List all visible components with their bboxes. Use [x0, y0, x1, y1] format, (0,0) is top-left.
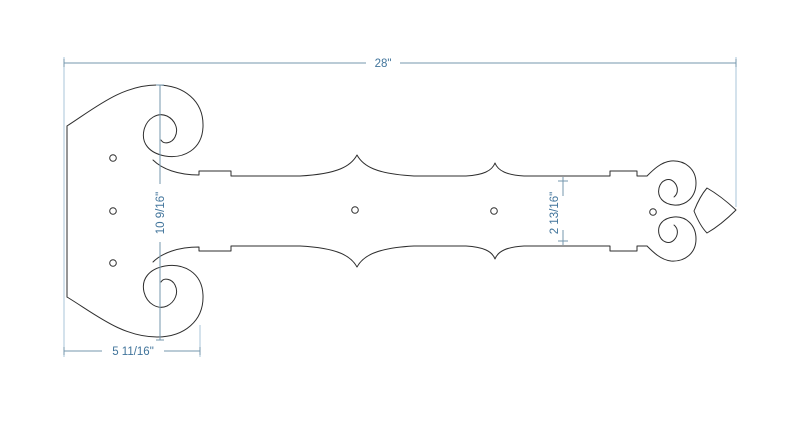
hinge-technical-drawing: 28" 10 9/16" 2 13/16" 5 11/16" [0, 0, 803, 432]
right-end-bottom-scroll [647, 217, 696, 261]
dimension-plate-height-label: 10 9/16" [155, 192, 167, 234]
screw-hole [110, 155, 117, 162]
right-end-spear-point [694, 188, 736, 233]
strap-bottom-edge [153, 246, 647, 267]
dimension-plate-width: 5 11/16" [64, 346, 200, 358]
hinge-outline [67, 85, 736, 337]
screw-hole [110, 260, 117, 267]
dimension-strap-width-label: 2 13/16" [549, 192, 561, 234]
screw-hole [650, 209, 657, 216]
dimension-plate-height: 10 9/16" [155, 85, 167, 340]
left-plate-bottom-scroll [67, 265, 203, 337]
drawing-canvas: 28" 10 9/16" 2 13/16" 5 11/16" [0, 0, 803, 432]
left-plate-top-scroll [67, 85, 203, 157]
dimension-overall-length-label: 28" [375, 58, 392, 70]
screw-hole [110, 208, 117, 215]
dimension-annotations: 28" 10 9/16" 2 13/16" 5 11/16" [64, 57, 736, 358]
dimension-plate-width-label: 5 11/16" [112, 346, 154, 358]
screw-hole [352, 207, 359, 214]
dimension-strap-width: 2 13/16" [549, 177, 568, 245]
screw-hole [491, 208, 498, 215]
dimension-overall-length: 28" [64, 58, 736, 70]
right-end-top-scroll [647, 161, 696, 205]
strap-top-edge [153, 155, 647, 176]
